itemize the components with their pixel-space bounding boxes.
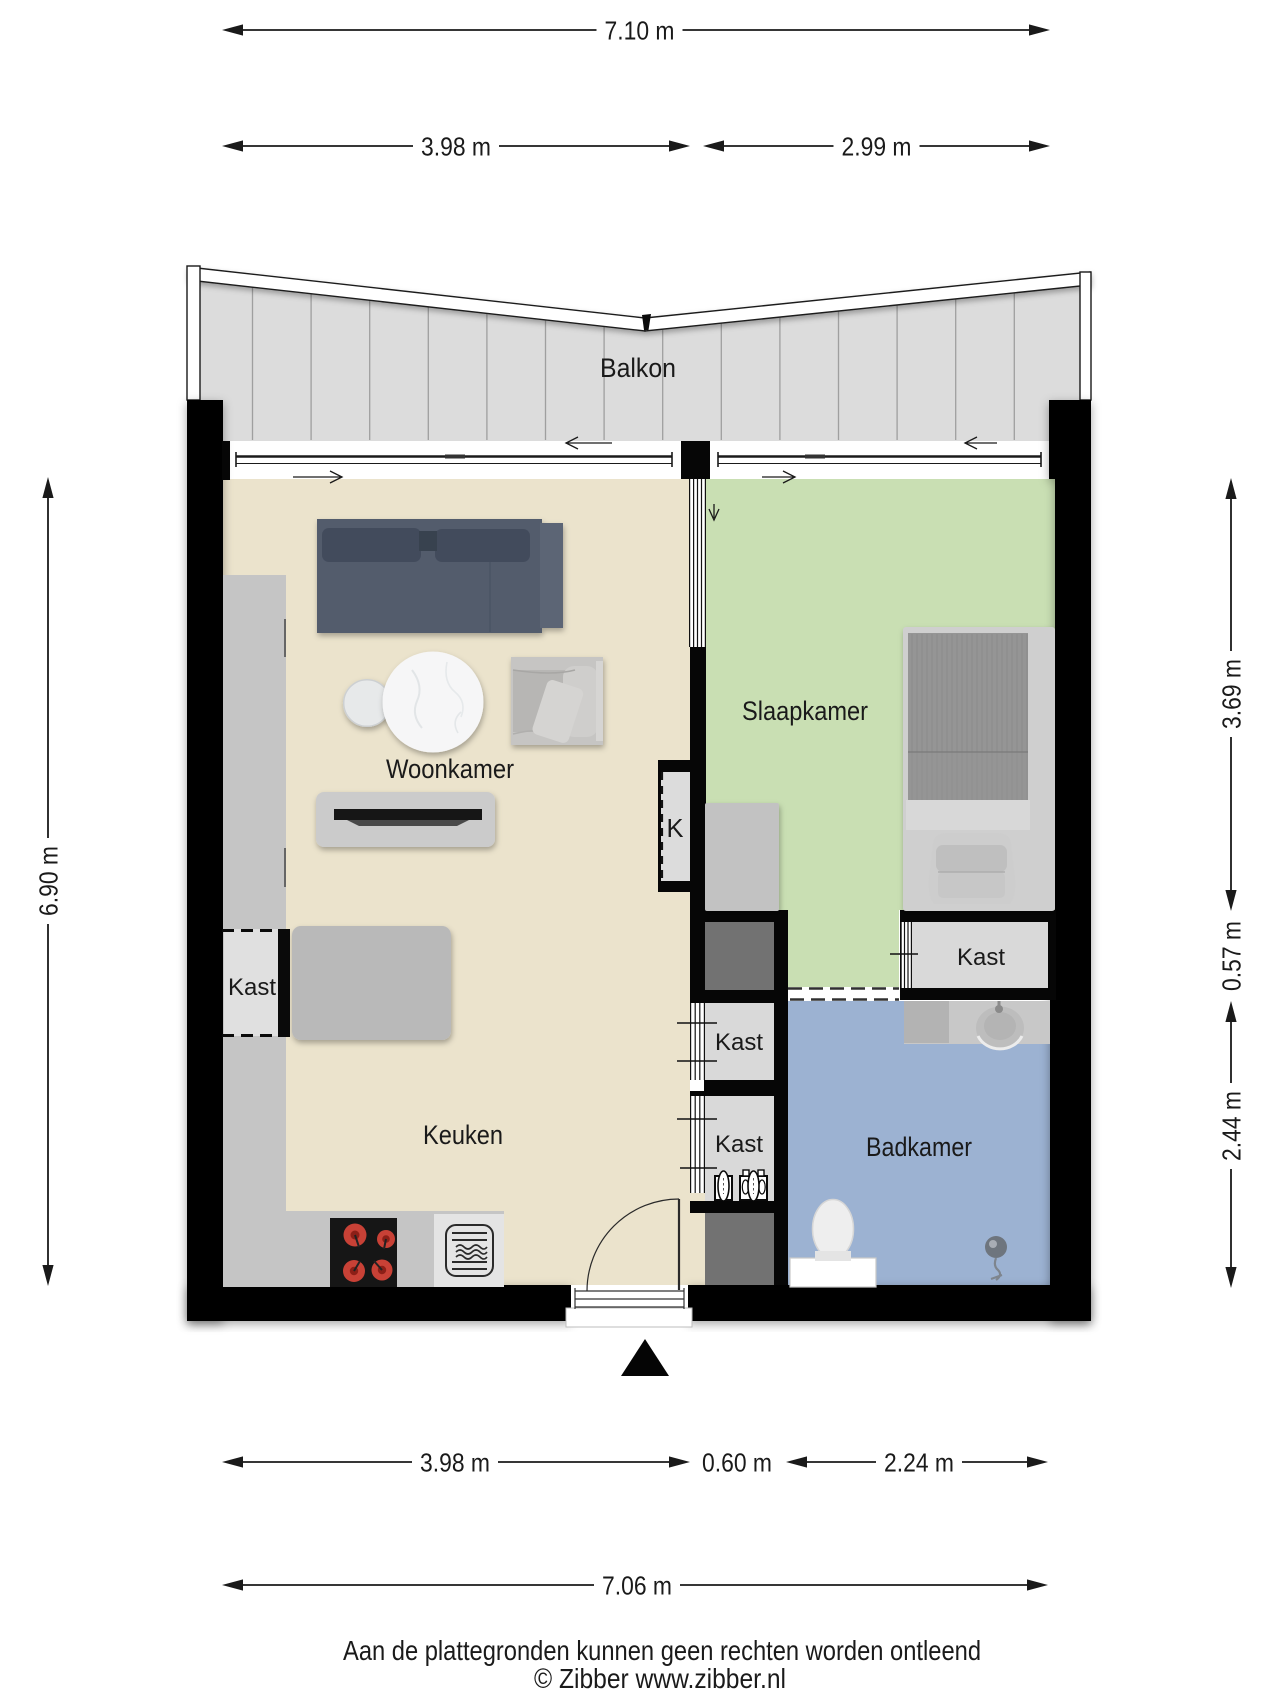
svg-text:Kast: Kast xyxy=(228,974,276,1001)
svg-text:Slaapkamer: Slaapkamer xyxy=(742,696,868,726)
svg-text:3.69 m: 3.69 m xyxy=(1217,659,1247,729)
svg-text:2.44 m: 2.44 m xyxy=(1217,1091,1247,1161)
svg-text:3.98 m: 3.98 m xyxy=(421,132,491,162)
svg-text:6.90 m: 6.90 m xyxy=(34,846,64,916)
svg-text:7.10 m: 7.10 m xyxy=(605,16,675,46)
svg-text:Keuken: Keuken xyxy=(423,1120,503,1150)
svg-text:0.60 m: 0.60 m xyxy=(702,1448,772,1478)
svg-text:Kast: Kast xyxy=(715,1131,763,1158)
svg-text:0.57 m: 0.57 m xyxy=(1217,921,1247,991)
svg-text:Aan de plattegronden kunnen ge: Aan de plattegronden kunnen geen rechten… xyxy=(343,1635,981,1666)
svg-text:© Zibber www.zibber.nl: © Zibber www.zibber.nl xyxy=(534,1663,786,1694)
svg-text:2.99 m: 2.99 m xyxy=(842,132,912,162)
svg-text:3.98 m: 3.98 m xyxy=(420,1448,490,1478)
svg-text:Balkon: Balkon xyxy=(600,353,676,383)
svg-text:Kast: Kast xyxy=(715,1029,763,1056)
svg-text:Woonkamer: Woonkamer xyxy=(386,754,514,784)
svg-text:7.06 m: 7.06 m xyxy=(602,1571,672,1601)
svg-text:2.24 m: 2.24 m xyxy=(884,1448,954,1478)
svg-text:Kast: Kast xyxy=(957,944,1005,971)
svg-text:K: K xyxy=(667,813,685,843)
svg-text:Badkamer: Badkamer xyxy=(866,1132,972,1162)
